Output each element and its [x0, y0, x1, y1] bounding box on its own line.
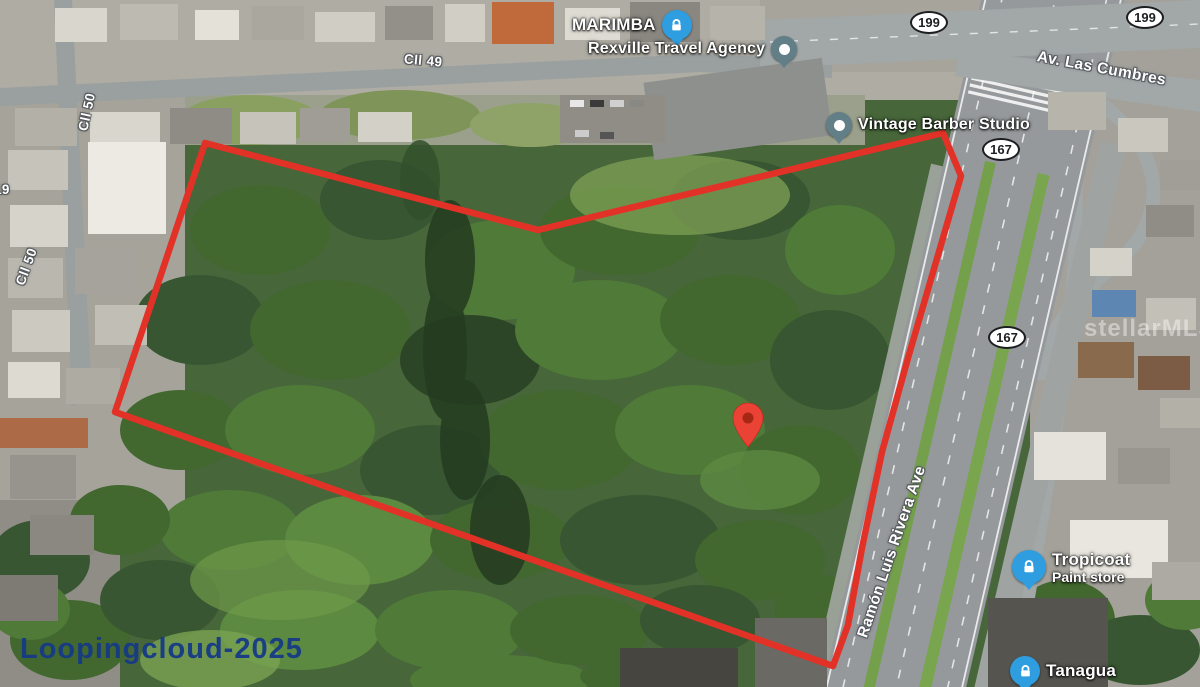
satellite-map[interactable]: MARIMBA Rexville Travel Agency Vintage B… — [0, 0, 1200, 687]
parking-lot — [560, 95, 665, 143]
aerial-imagery — [0, 0, 1200, 687]
